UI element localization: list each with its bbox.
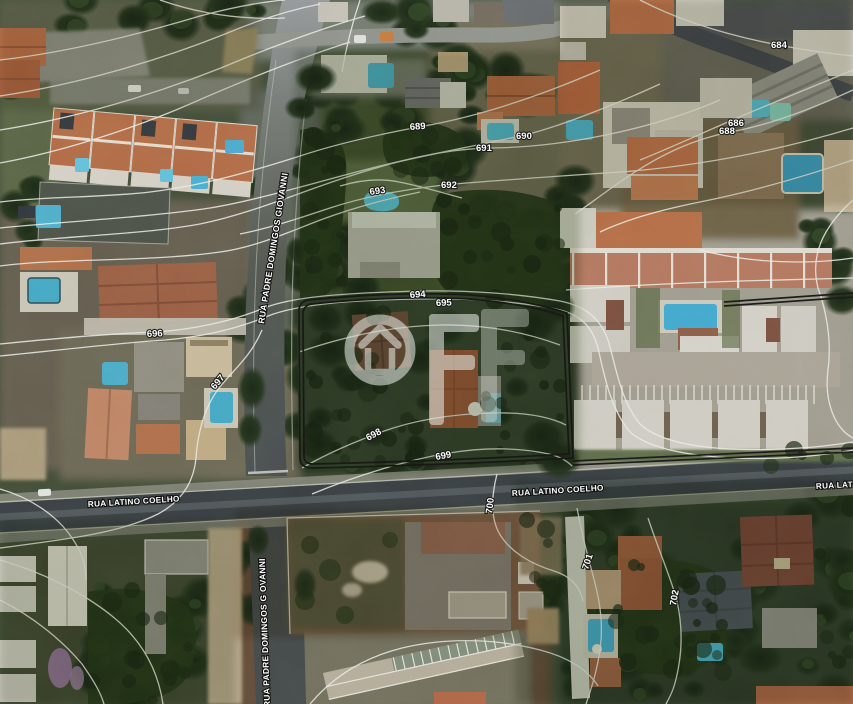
svg-text:696: 696: [147, 328, 163, 340]
svg-text:693: 693: [369, 185, 386, 198]
svg-text:690: 690: [516, 131, 532, 142]
svg-text:694: 694: [409, 289, 426, 301]
svg-text:692: 692: [441, 180, 457, 191]
svg-text:RUA LATIN: RUA LATIN: [816, 480, 853, 491]
svg-text:689: 689: [409, 121, 426, 133]
svg-text:695: 695: [436, 297, 453, 309]
svg-text:688: 688: [719, 126, 735, 137]
svg-text:700: 700: [484, 497, 497, 514]
svg-text:691: 691: [476, 143, 493, 154]
svg-text:684: 684: [771, 40, 788, 51]
